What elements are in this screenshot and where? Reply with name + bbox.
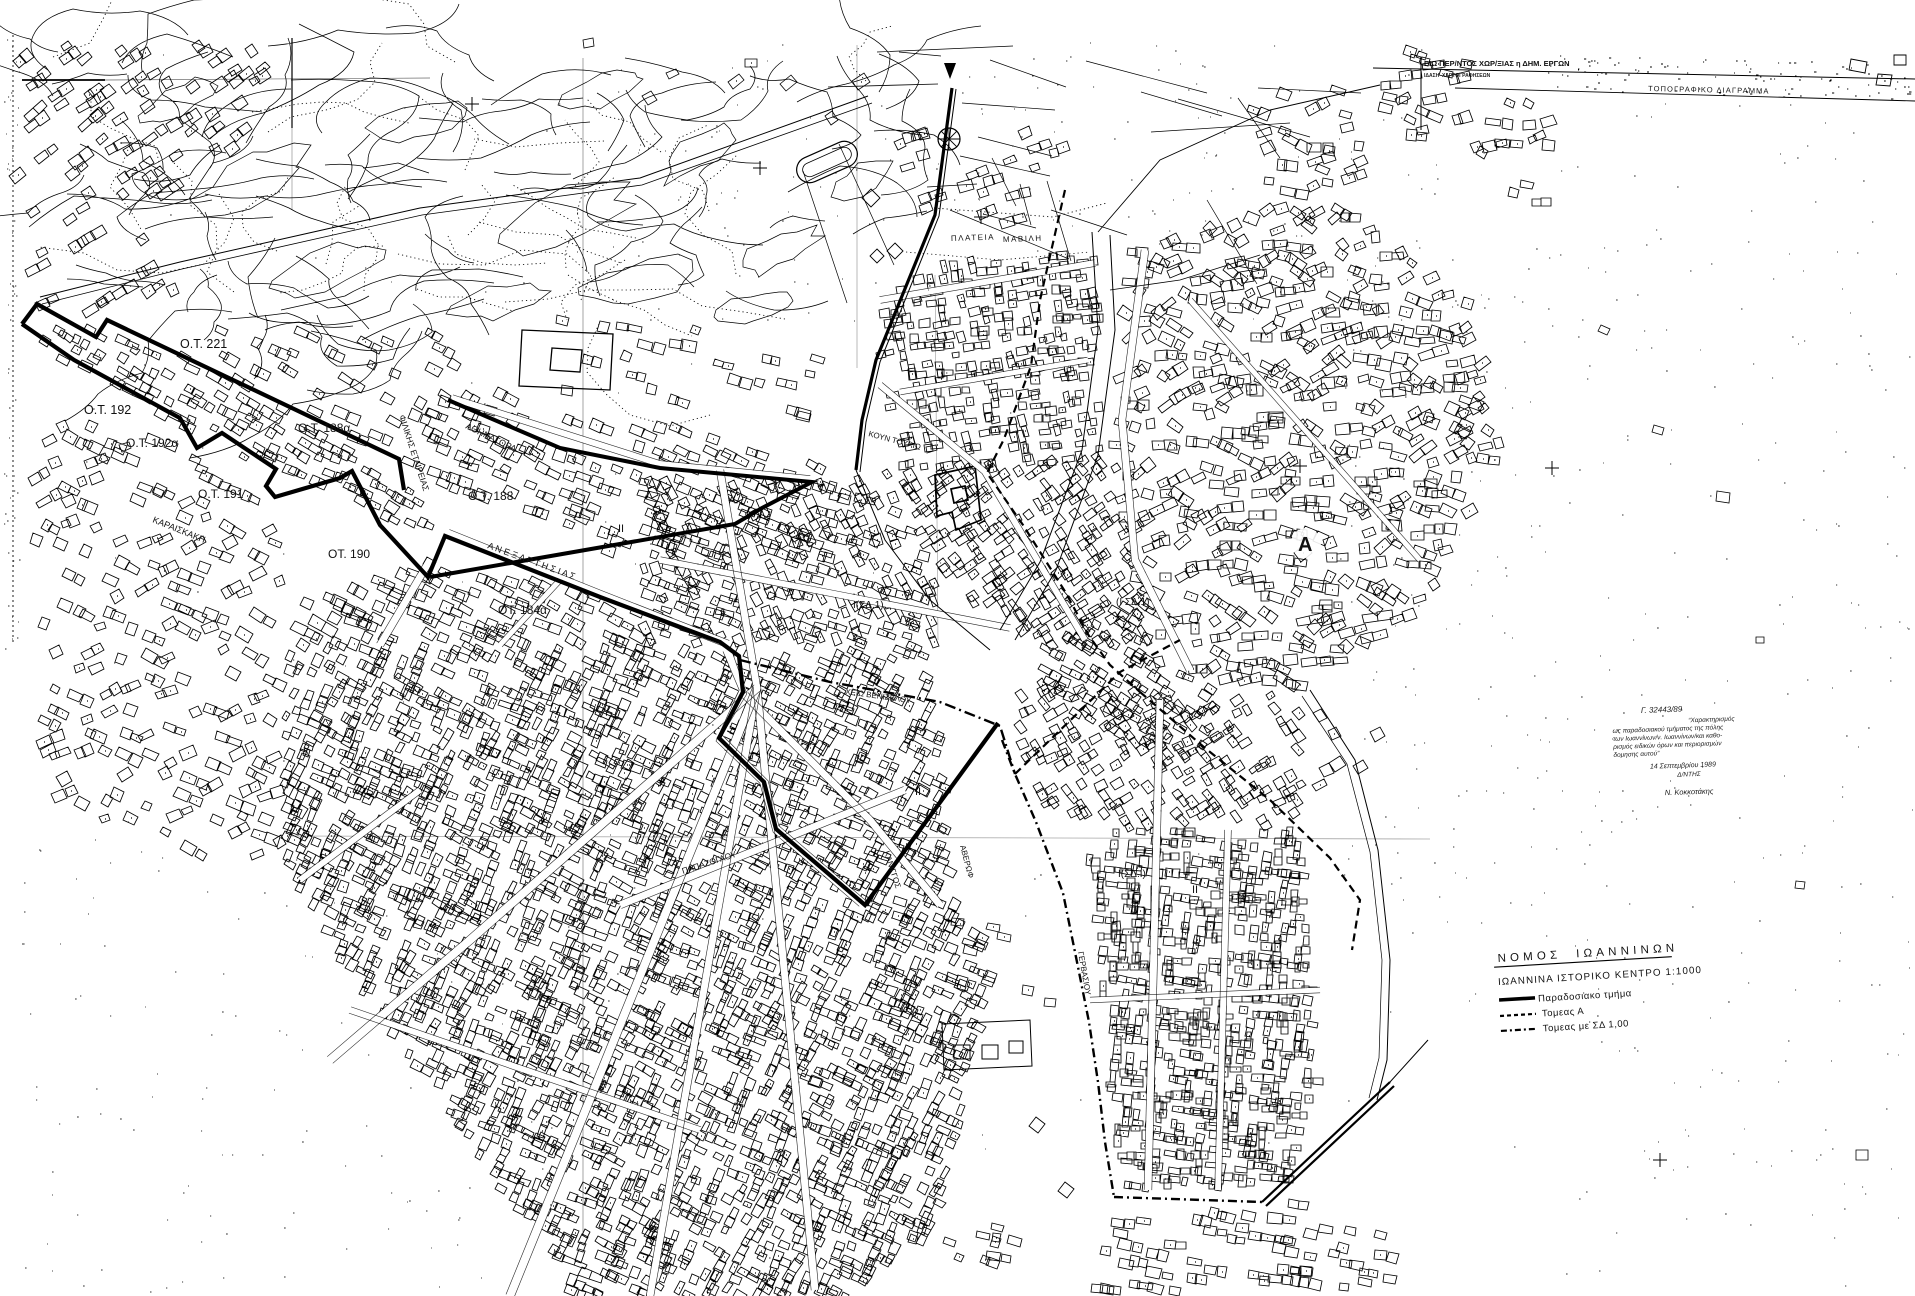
svg-text:Ι(ΣΔ.Ι): Ι(ΣΔ.Ι) [1118, 869, 1146, 880]
svg-text:Α: Α [1298, 534, 1312, 556]
svg-text:ΙΙ: ΙΙ [915, 786, 921, 798]
svg-text:ΙΙ: ΙΙ [1192, 884, 1198, 896]
svg-text:ΜΑΒΙΛΗ: ΜΑΒΙΛΗ [1003, 234, 1043, 244]
svg-text:Ο.Τ. 192: Ο.Τ. 192 [84, 403, 131, 417]
svg-text:“Χαρακτηρισμός: “Χαρακτηρισμός [1688, 715, 1735, 725]
svg-text:ΙΙ: ΙΙ [618, 523, 624, 535]
svg-text:Ι(ΣΔ.1): Ι(ΣΔ.1) [853, 600, 884, 611]
svg-text:ΕΙΩ ΠΕΡ/ΝΤΟΣ ΧΩΡ/ΞΙΑΣ η ΔΗΜ. Ε: ΕΙΩ ΠΕΡ/ΝΤΟΣ ΧΩΡ/ΞΙΑΣ η ΔΗΜ. ΕΡΓΩΝ [1424, 59, 1570, 68]
svg-text:(Ι ΣΔ.1): (Ι ΣΔ.1) [1116, 597, 1149, 608]
svg-text:Ο.Τ. 191: Ο.Τ. 191 [198, 487, 244, 501]
svg-text:Γ. 32443/89: Γ. 32443/89 [1641, 705, 1683, 715]
svg-text:Δ/ΝΤΗΣ: Δ/ΝΤΗΣ [1676, 771, 1702, 779]
svg-text:Ο.Τ. 188α: Ο.Τ. 188α [298, 421, 350, 435]
svg-text:ΟΤ. 184α: ΟΤ. 184α [498, 603, 547, 617]
svg-text:Ο.Τ. 188: Ο.Τ. 188 [468, 489, 514, 503]
svg-text:ΠΛΑΤΕΙΑ: ΠΛΑΤΕΙΑ [951, 232, 995, 243]
svg-text:ΟΤ. 190: ΟΤ. 190 [328, 547, 370, 561]
svg-text:Ο.Τ. 192α: Ο.Τ. 192α [126, 436, 178, 450]
svg-text:δομησης αυτού”: δομησης αυτού” [1613, 749, 1660, 759]
svg-text:Ο.Τ. 221: Ο.Τ. 221 [180, 337, 227, 351]
